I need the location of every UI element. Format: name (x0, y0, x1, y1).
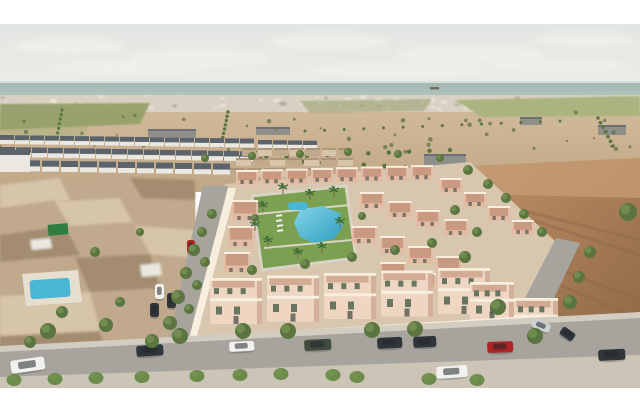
roadside-tree (225, 119, 228, 122)
townhouse-roof (96, 149, 111, 155)
warehouse-roof (256, 127, 290, 129)
distant-building (436, 107, 439, 109)
scrub-dot (293, 118, 296, 121)
distant-building (325, 97, 328, 100)
roadside-tree (480, 123, 483, 126)
townhouse-roof (15, 135, 29, 140)
roadside-tree (604, 130, 608, 134)
distant-building (145, 96, 147, 98)
tree-highlight (185, 305, 191, 311)
old-house-roof (304, 158, 319, 160)
roadside-tree (519, 121, 522, 124)
tree-highlight (137, 229, 141, 233)
aerial-render (0, 0, 640, 412)
townhouse-roof (99, 162, 116, 168)
old-house-roof (322, 148, 336, 150)
villa-window (424, 175, 428, 179)
scrub-dot (24, 130, 28, 134)
tree-highlight (395, 151, 399, 155)
car (487, 341, 513, 355)
distant-building (173, 105, 177, 108)
villa-window (241, 288, 246, 294)
villa-parapet (512, 220, 534, 222)
townhouse-roof (194, 163, 211, 169)
tree-highlight (585, 247, 592, 254)
villa-roof (410, 248, 431, 258)
villa-roof (338, 169, 356, 177)
roadside-tree (539, 120, 542, 123)
townhouse-roof (75, 136, 89, 141)
villa (336, 167, 358, 182)
scrub-dot (267, 119, 271, 123)
roadside-tree (225, 115, 228, 118)
scrub-dot (347, 137, 352, 142)
townhouse-roof (160, 150, 175, 156)
villa-window (387, 299, 393, 307)
villa-window (374, 204, 378, 208)
villa-window (214, 288, 219, 294)
villa-parapet (416, 210, 440, 212)
villa-window (284, 286, 289, 292)
warehouse-roof (148, 129, 196, 131)
villa-roof (442, 180, 460, 188)
villa (408, 246, 433, 264)
villa-parapet (380, 236, 405, 238)
villa-window (357, 239, 361, 243)
townhouse-roof (210, 138, 224, 143)
old-house-roof (270, 158, 285, 160)
villa-parapet (464, 192, 486, 194)
tree-highlight (359, 213, 363, 217)
scrub-dot (603, 119, 606, 122)
old-house-roof (287, 158, 302, 160)
bush-highlight (234, 370, 242, 376)
villa-window (430, 222, 434, 226)
villa-window (518, 306, 523, 312)
distant-building (360, 96, 366, 99)
townhouse-roof (120, 137, 134, 142)
roadside-tree (59, 118, 62, 121)
scrub-dot (319, 127, 321, 129)
townhouse-roof (128, 149, 143, 155)
distant-building (299, 106, 305, 109)
distant-building (220, 104, 227, 107)
townhouse-roof (137, 162, 154, 168)
villa-window (529, 306, 534, 312)
car-cabin (310, 341, 324, 348)
distant-building (346, 98, 352, 100)
villa-roof-terrace (384, 273, 426, 280)
townhouse-roof (240, 139, 254, 144)
townhouse-roof (32, 148, 47, 154)
villa (488, 206, 510, 221)
villa-window (423, 259, 427, 263)
villa-parapet (388, 201, 412, 203)
villa-parapet (352, 226, 377, 228)
villa-string-course (470, 299, 514, 302)
cloud (535, 33, 635, 47)
roadside-tree (421, 125, 424, 128)
distant-building (112, 97, 117, 99)
villa-window (240, 180, 244, 184)
villa-roof (234, 202, 256, 214)
villa-roof (226, 254, 248, 266)
villa-string-course (381, 291, 433, 294)
villa-window (393, 213, 397, 217)
scrub-dot (574, 111, 578, 115)
villa-window (315, 178, 319, 182)
car-cabin (604, 351, 618, 358)
bush-highlight (327, 370, 335, 376)
villa-parapet (380, 262, 406, 264)
tree-highlight (348, 253, 354, 259)
distant-building (441, 101, 447, 104)
bush-highlight (49, 374, 57, 380)
villa-parapet (411, 165, 433, 167)
townhouse-roof (45, 136, 59, 141)
tree-highlight (484, 180, 490, 186)
tree-highlight (248, 266, 254, 272)
tree-highlight (193, 281, 199, 287)
scrub-dot (611, 130, 616, 135)
scrub-dot (426, 143, 430, 147)
old-town-roof (30, 238, 52, 250)
tree-highlight (146, 335, 154, 343)
cloud (270, 34, 390, 50)
tree-highlight (502, 194, 508, 200)
tree-highlight (202, 155, 206, 159)
villa-parapet (236, 170, 258, 172)
villa (311, 168, 333, 183)
distant-building (98, 96, 105, 98)
tree-highlight (57, 307, 64, 314)
villa-parapet (324, 273, 376, 276)
tree-highlight (473, 228, 479, 234)
villa-window (367, 239, 371, 243)
villa-door (234, 316, 239, 324)
villa-window (516, 230, 520, 234)
car (304, 339, 332, 353)
villa-string-course (267, 296, 319, 299)
villa-window (365, 177, 369, 181)
villa-parapet (444, 219, 468, 221)
bush-highlight (471, 375, 479, 381)
roadside-tree (223, 127, 226, 130)
townhouse-roof (112, 149, 127, 155)
villa-parapet (470, 282, 514, 285)
villa-window (298, 286, 303, 292)
tree-highlight (236, 324, 245, 333)
villa-string-course (210, 298, 262, 301)
tree-highlight (172, 291, 180, 299)
roadside-tree (596, 116, 600, 120)
villa (416, 210, 440, 227)
villa-window (234, 307, 240, 315)
tree-highlight (164, 317, 172, 325)
villa-parapet (336, 167, 358, 169)
roadside-tree (460, 123, 463, 126)
car (155, 284, 164, 301)
villa-roof-terrace (327, 276, 369, 283)
villa-window (385, 249, 389, 253)
villa-window (476, 306, 482, 314)
townhouse-roof (225, 138, 239, 143)
tree-highlight (574, 272, 581, 279)
townhouse-roof (48, 148, 63, 154)
townhouse-roof (208, 151, 223, 157)
villa-roof (354, 228, 375, 238)
tree-highlight (437, 155, 441, 159)
villa (361, 167, 383, 182)
roadside-tree (362, 127, 365, 130)
old-house-roof (306, 148, 320, 150)
photo-area (0, 24, 640, 388)
villa-parapet (261, 169, 283, 171)
roadside-tree (226, 110, 229, 113)
roadside-tree (58, 122, 61, 125)
villa-window (525, 230, 529, 234)
villa-parapet (360, 192, 384, 194)
villa-window (328, 283, 333, 289)
tree-highlight (538, 228, 544, 234)
scrub-dot (227, 148, 230, 151)
car (229, 341, 255, 354)
villa-window (240, 268, 244, 272)
tree-highlight (428, 239, 434, 245)
villa-door (291, 314, 296, 322)
villa-window (385, 281, 390, 287)
villa-window (477, 202, 481, 206)
townhouse-roof (135, 137, 149, 142)
scrub-dot (614, 147, 618, 151)
villa-window (444, 297, 450, 305)
roadside-tree (599, 121, 603, 125)
townhouse-roof (165, 137, 179, 142)
scrub-dot (401, 118, 405, 122)
cloud (310, 63, 490, 77)
villa (360, 192, 384, 209)
villa (464, 192, 486, 207)
scrub-dot (467, 122, 472, 127)
townhouse-roof (195, 138, 209, 143)
villa-window (374, 177, 378, 181)
distant-building (248, 104, 255, 107)
scrub-dot (428, 137, 433, 142)
tree-highlight (345, 149, 349, 153)
bush-highlight (136, 372, 144, 378)
car (436, 365, 468, 381)
roadside-tree (366, 151, 370, 155)
tree-highlight (620, 204, 630, 214)
townhouse-roof (258, 140, 272, 144)
villa-window (501, 216, 505, 220)
distant-building (87, 96, 90, 98)
townhouse-roof (144, 150, 159, 156)
villa-window (462, 297, 468, 305)
villa-roof (363, 169, 381, 177)
roadside-tree (448, 148, 452, 152)
villa-roof (388, 168, 406, 176)
distant-building (1, 97, 5, 99)
villa-roof (390, 203, 410, 212)
townhouse-roof (0, 135, 14, 140)
car-cabin (142, 347, 156, 354)
distant-building (431, 98, 435, 102)
bush-highlight (423, 374, 431, 380)
distant-building (439, 108, 441, 112)
scrub-dot (22, 119, 26, 123)
townhouse-roof (175, 163, 192, 169)
field (300, 99, 432, 113)
distant-building (445, 96, 450, 99)
sea (0, 81, 640, 96)
roadside-tree (57, 127, 60, 130)
car (150, 303, 159, 319)
villa-window (421, 222, 425, 226)
villa-window (273, 304, 279, 312)
old-house-roof (242, 148, 256, 150)
old-town-pool (29, 278, 70, 300)
villa (228, 226, 254, 247)
villa-window (324, 178, 328, 182)
villa (512, 220, 534, 235)
townhouse-roof (80, 161, 97, 167)
villa-window (474, 290, 479, 296)
roadside-tree (601, 126, 605, 130)
villa (470, 282, 514, 320)
scrub-dot (133, 114, 137, 118)
car (377, 337, 403, 351)
villa-parapet (224, 252, 250, 254)
townhouse-roof (180, 138, 194, 143)
distant-building (220, 98, 225, 100)
villa-door (462, 306, 467, 314)
distant-building (316, 97, 318, 99)
roadside-tree (224, 123, 227, 126)
tree-highlight (564, 296, 572, 304)
villa (324, 273, 376, 319)
scrub-dot (116, 134, 118, 136)
warehouse-roof (424, 154, 466, 156)
tree-highlight (25, 337, 32, 344)
villa-door (405, 309, 410, 317)
distant-building (214, 105, 218, 107)
villa-parapet (514, 298, 558, 301)
villa-window (390, 176, 394, 180)
villa-window (415, 175, 419, 179)
tree-highlight (173, 329, 182, 338)
villa-window (233, 242, 237, 246)
roadside-tree (323, 129, 326, 132)
distant-building (51, 100, 57, 103)
ship (430, 87, 439, 90)
bush-highlight (351, 372, 359, 378)
tree-highlight (91, 248, 97, 254)
villa-window (237, 216, 241, 220)
scrub-dot (394, 133, 397, 136)
villa-window (458, 231, 462, 235)
villa-parapet (228, 226, 254, 228)
old-house-roof (321, 158, 336, 160)
car-cabin (383, 339, 396, 346)
townhouse-roof (42, 161, 59, 167)
villa-string-course (324, 293, 376, 296)
distant-building (4, 101, 7, 103)
villa-door (348, 311, 353, 319)
villa (267, 276, 319, 322)
roadside-tree (427, 149, 431, 153)
tree-highlight (491, 300, 500, 309)
tree-highlight (297, 151, 301, 155)
scrub-dot (488, 122, 492, 126)
tree-highlight (451, 206, 457, 212)
cloud (395, 45, 545, 63)
old-house-roof (338, 158, 353, 160)
scrub-dot (478, 118, 482, 122)
tree-highlight (391, 246, 397, 252)
roadside-tree (609, 140, 613, 144)
tree-highlight (189, 245, 196, 252)
bush-highlight (191, 371, 199, 377)
townhouse-roof (64, 148, 79, 154)
scrub-dot (428, 117, 431, 120)
villa-window (244, 242, 248, 246)
cloud (15, 38, 125, 54)
roadside-tree (441, 124, 444, 127)
roadside-tree (222, 132, 225, 135)
villa (411, 165, 433, 180)
townhouse-roof (150, 137, 164, 142)
roadside-tree (56, 131, 59, 134)
villa-roof (313, 170, 331, 178)
horizon-haze (0, 79, 640, 83)
tree-highlight (528, 329, 537, 338)
villa-window (248, 216, 252, 220)
villa-window (365, 204, 369, 208)
villa-roof (446, 221, 466, 230)
villa-window (495, 290, 500, 296)
roadside-tree (402, 126, 405, 129)
villa-parapet (267, 276, 319, 279)
distant-building (454, 103, 460, 105)
scrub-dot (485, 132, 489, 136)
villa-window (399, 176, 403, 180)
villa-window (468, 202, 472, 206)
villa-window (453, 188, 457, 192)
car-cabin (157, 287, 162, 295)
villa-window (330, 302, 336, 310)
tree-highlight (365, 323, 374, 332)
villa-window (265, 179, 269, 183)
scrub-dot (122, 115, 125, 118)
villa-window (349, 177, 353, 181)
scrub-dot (464, 119, 468, 123)
tree-highlight (208, 210, 214, 216)
villa-window (274, 179, 278, 183)
roadside-tree (60, 113, 63, 116)
townhouse-roof (105, 137, 119, 142)
townhouse-roof (80, 148, 95, 154)
villa-roof-terrace (270, 278, 312, 285)
villa-roof (263, 171, 281, 179)
villa-roof (514, 222, 532, 230)
car-cabin (235, 343, 248, 349)
villa (224, 252, 250, 273)
villa-window (402, 213, 406, 217)
townhouse-roof (156, 163, 173, 169)
villa-parapet (436, 256, 461, 258)
villa-roof (288, 171, 306, 179)
